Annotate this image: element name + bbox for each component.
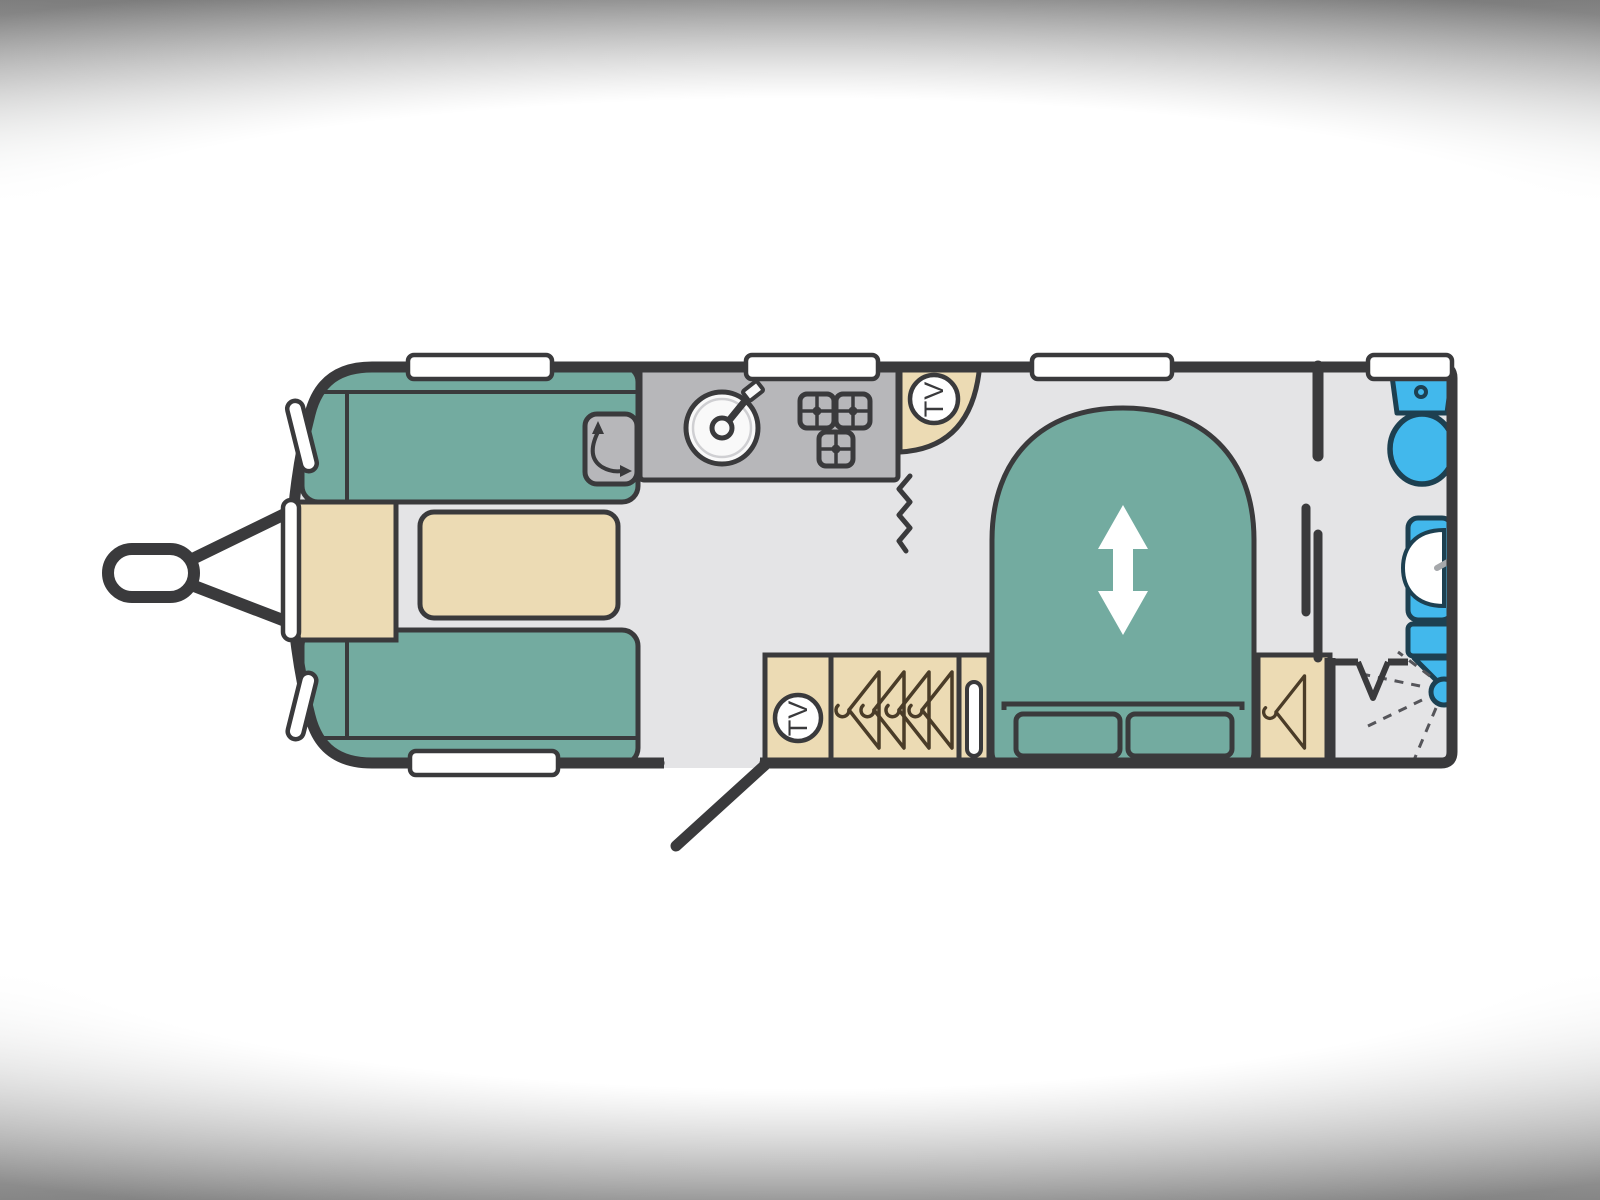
bedside-box bbox=[1258, 655, 1330, 765]
bedside-wardrobe bbox=[1258, 655, 1330, 765]
table bbox=[420, 512, 618, 618]
window bbox=[746, 355, 878, 379]
entrance-door bbox=[654, 750, 771, 846]
tv-point-label: TV bbox=[919, 381, 949, 418]
toilet-bowl bbox=[1390, 414, 1454, 484]
window bbox=[408, 355, 552, 379]
swivel-worktop bbox=[585, 414, 637, 484]
burner-dot bbox=[849, 407, 858, 416]
window bbox=[410, 751, 558, 775]
shower-hook bbox=[1462, 658, 1474, 670]
window-front bbox=[283, 500, 299, 640]
front-lounge bbox=[294, 366, 638, 764]
wardrobe bbox=[831, 655, 959, 765]
burner-dot bbox=[832, 445, 841, 454]
drawer-unit bbox=[959, 655, 989, 765]
front-chest bbox=[294, 502, 396, 640]
hitch-ring bbox=[108, 549, 194, 597]
toilet-cistern bbox=[1392, 376, 1452, 413]
drawer-slot bbox=[967, 682, 981, 756]
caravan-floorplan: TV TV bbox=[0, 0, 1600, 1200]
tv-point-label: TV bbox=[783, 700, 813, 737]
wall-end-cap bbox=[654, 758, 665, 769]
window bbox=[1032, 355, 1172, 379]
tv-cabinet: TV bbox=[765, 655, 831, 765]
window bbox=[1368, 355, 1452, 379]
tow-hitch bbox=[108, 510, 293, 624]
vanity-lower bbox=[1408, 624, 1452, 656]
bed-pillow bbox=[1128, 714, 1232, 756]
tap-base bbox=[712, 418, 732, 438]
bed-pillow bbox=[1016, 714, 1120, 756]
burner-dot bbox=[813, 407, 822, 416]
door-gap-floor bbox=[664, 750, 760, 768]
toilet bbox=[1390, 376, 1454, 484]
sofa-bottom bbox=[302, 630, 638, 764]
island-bed bbox=[992, 408, 1254, 765]
page: TV TV bbox=[0, 0, 1600, 1200]
